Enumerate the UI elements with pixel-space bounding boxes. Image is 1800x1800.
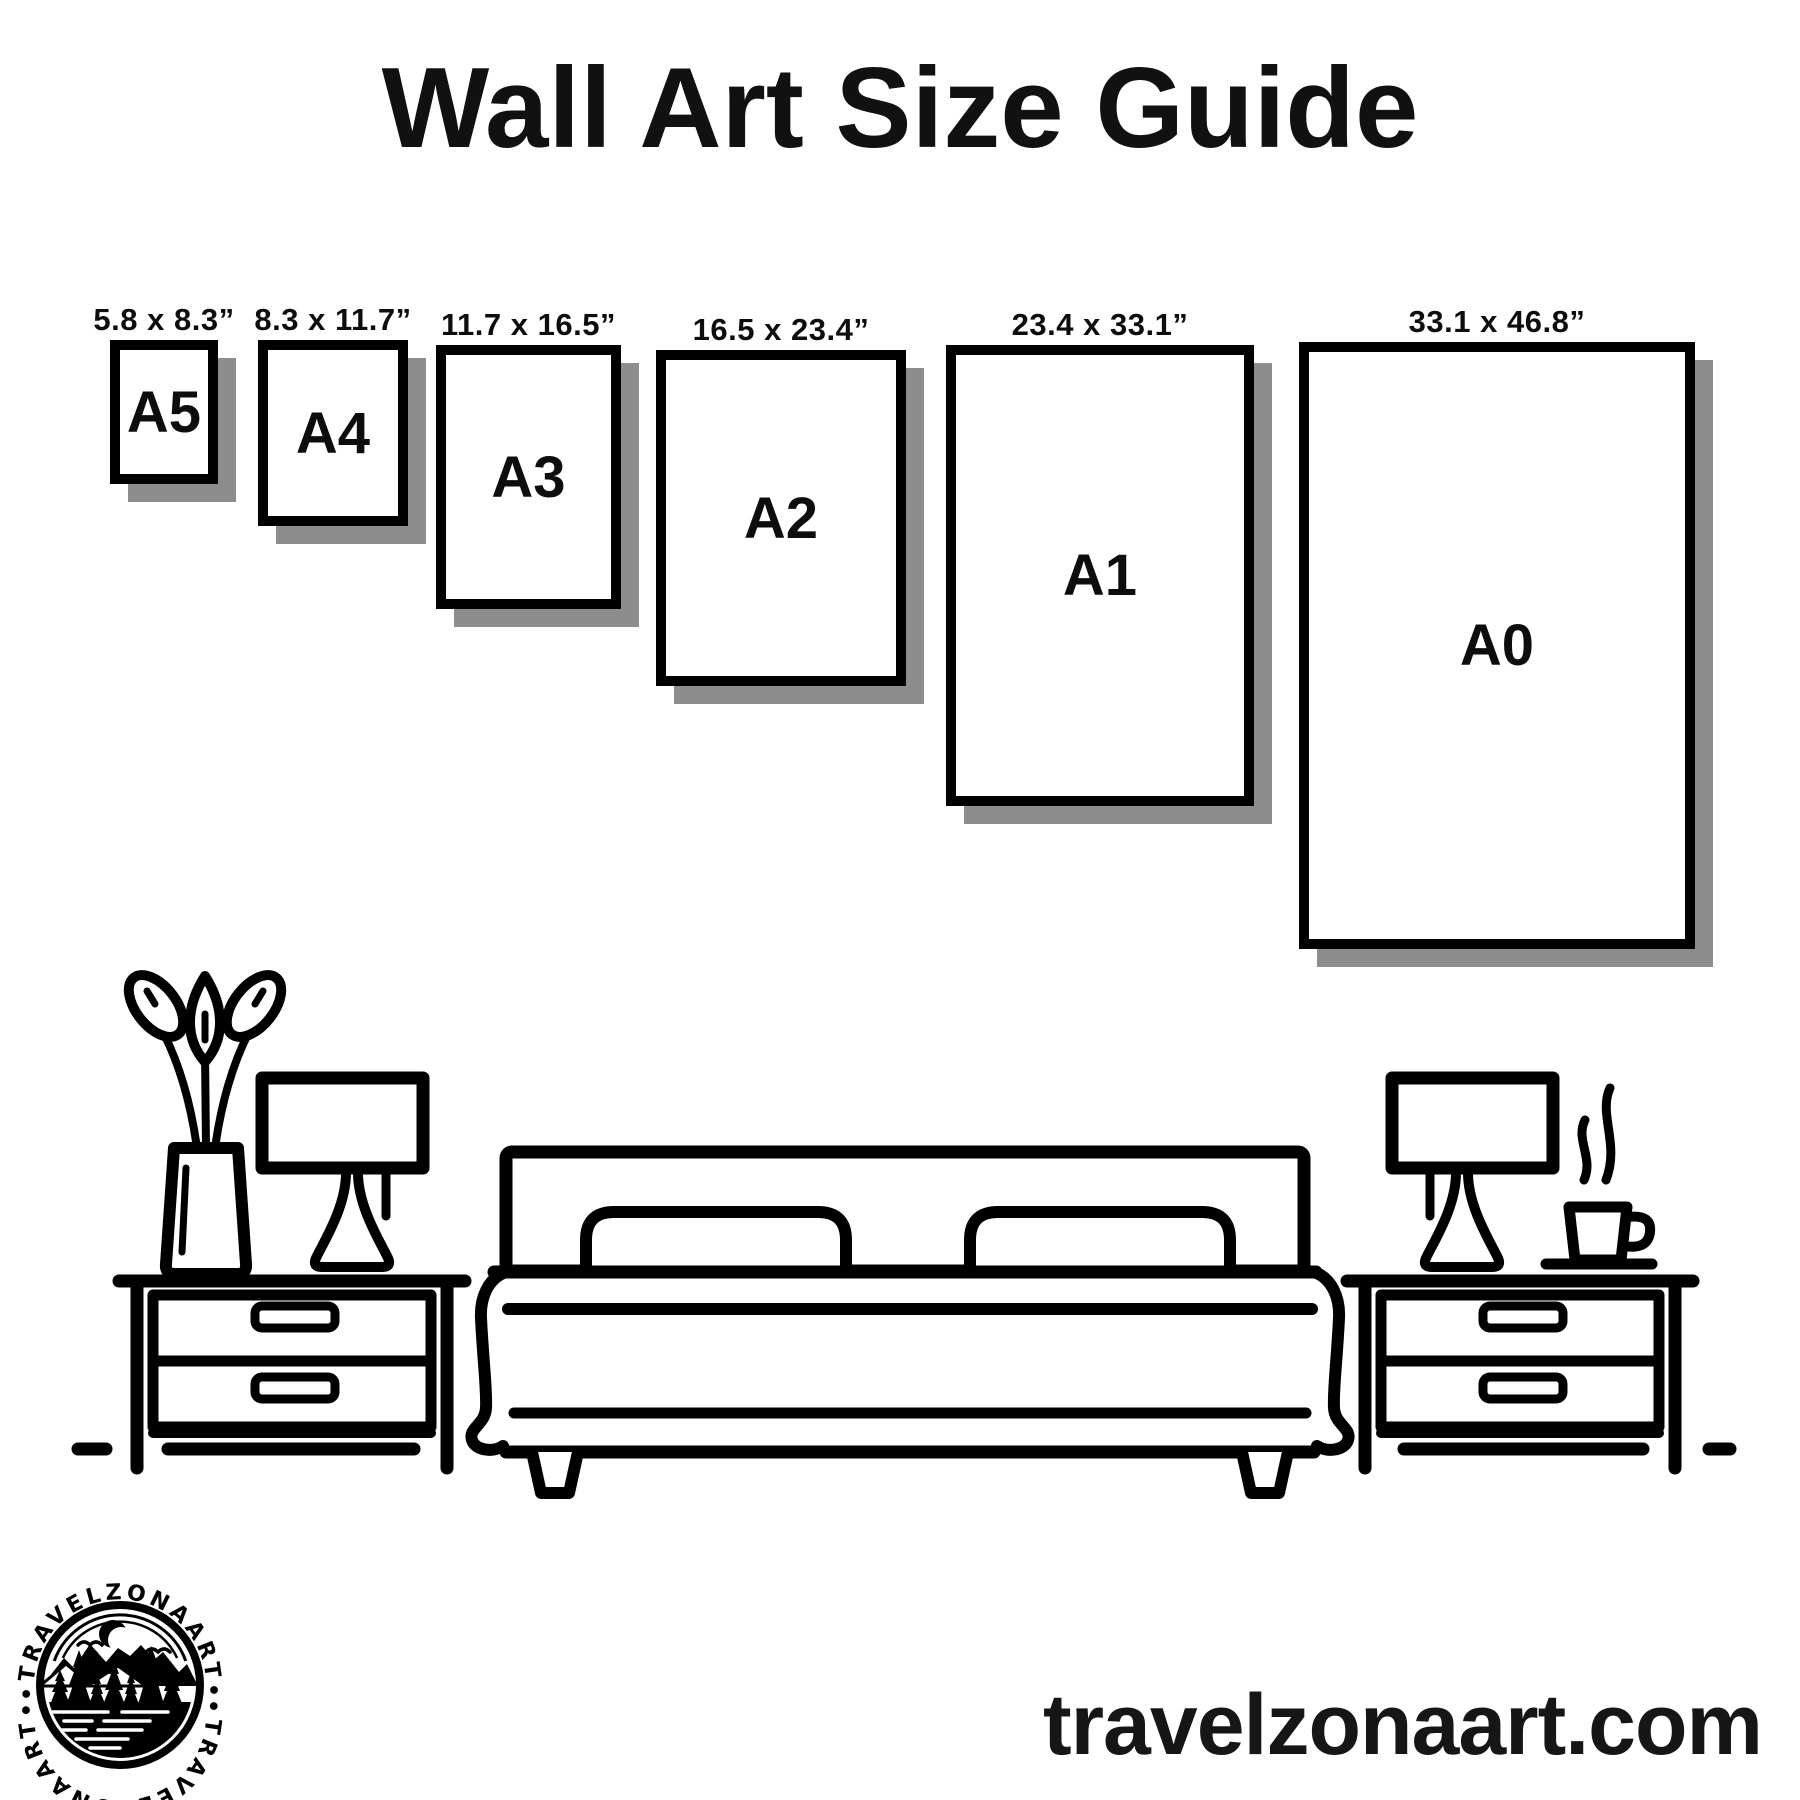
table-lamp-left-icon bbox=[262, 1078, 423, 1267]
nightstand-right-icon bbox=[1347, 1281, 1693, 1468]
bedroom-illustration: •TRAVELZONAART• •TRAVELZONAART• bbox=[0, 0, 1800, 1800]
table-lamp-right-icon bbox=[1392, 1078, 1553, 1267]
blanket-drape bbox=[1314, 1272, 1349, 1450]
website-url: travelzonaart.com bbox=[0, 1682, 1762, 1768]
lamp-shade bbox=[262, 1078, 423, 1168]
steam-icon bbox=[1582, 1120, 1587, 1180]
lamp-shade bbox=[1392, 1078, 1553, 1168]
bed-leg bbox=[532, 1452, 578, 1493]
blanket-drape bbox=[471, 1272, 506, 1450]
bed-leg bbox=[1242, 1452, 1288, 1493]
pillow-icon bbox=[586, 1212, 846, 1271]
pillow-icon bbox=[970, 1212, 1230, 1271]
steam-icon bbox=[1606, 1088, 1611, 1180]
coffee-cup-icon bbox=[1546, 1088, 1652, 1264]
bed-icon bbox=[471, 1152, 1348, 1493]
nightstand-left-icon bbox=[119, 1281, 465, 1468]
